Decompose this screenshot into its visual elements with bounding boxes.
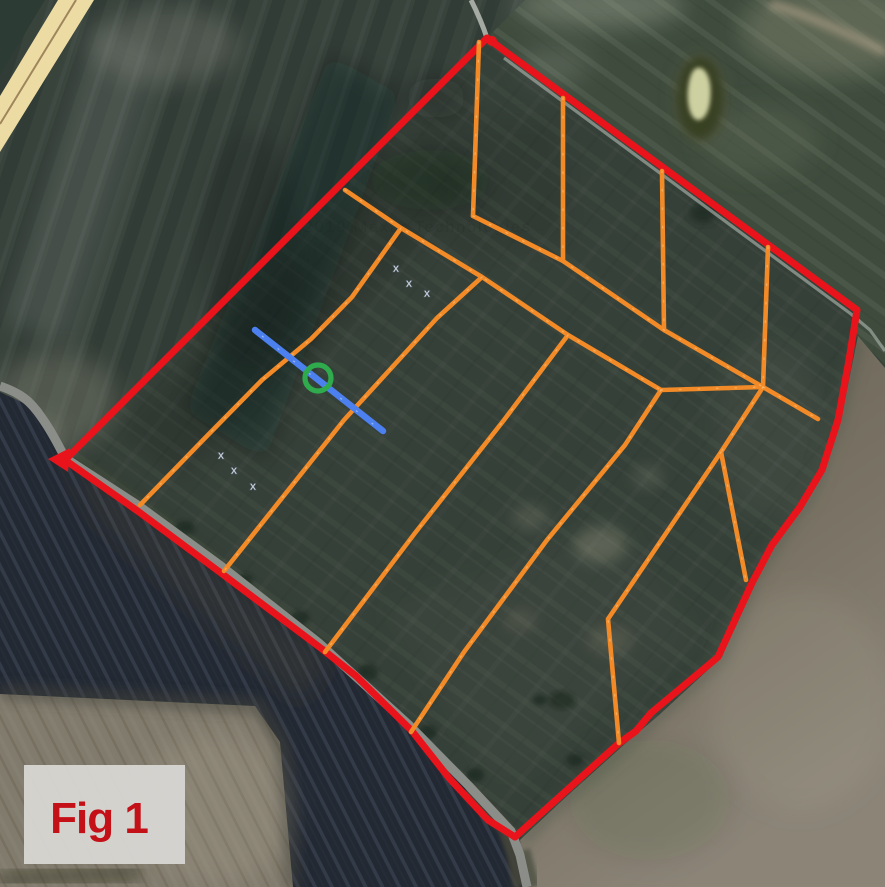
svg-text:Fig 1: Fig 1 [50, 794, 148, 843]
svg-text:x: x [406, 276, 413, 290]
svg-text:x: x [424, 286, 431, 300]
svg-text:x: x [231, 463, 238, 477]
svg-text:x: x [393, 261, 400, 275]
svg-text:x: x [218, 448, 225, 462]
svg-text:x: x [250, 479, 257, 493]
